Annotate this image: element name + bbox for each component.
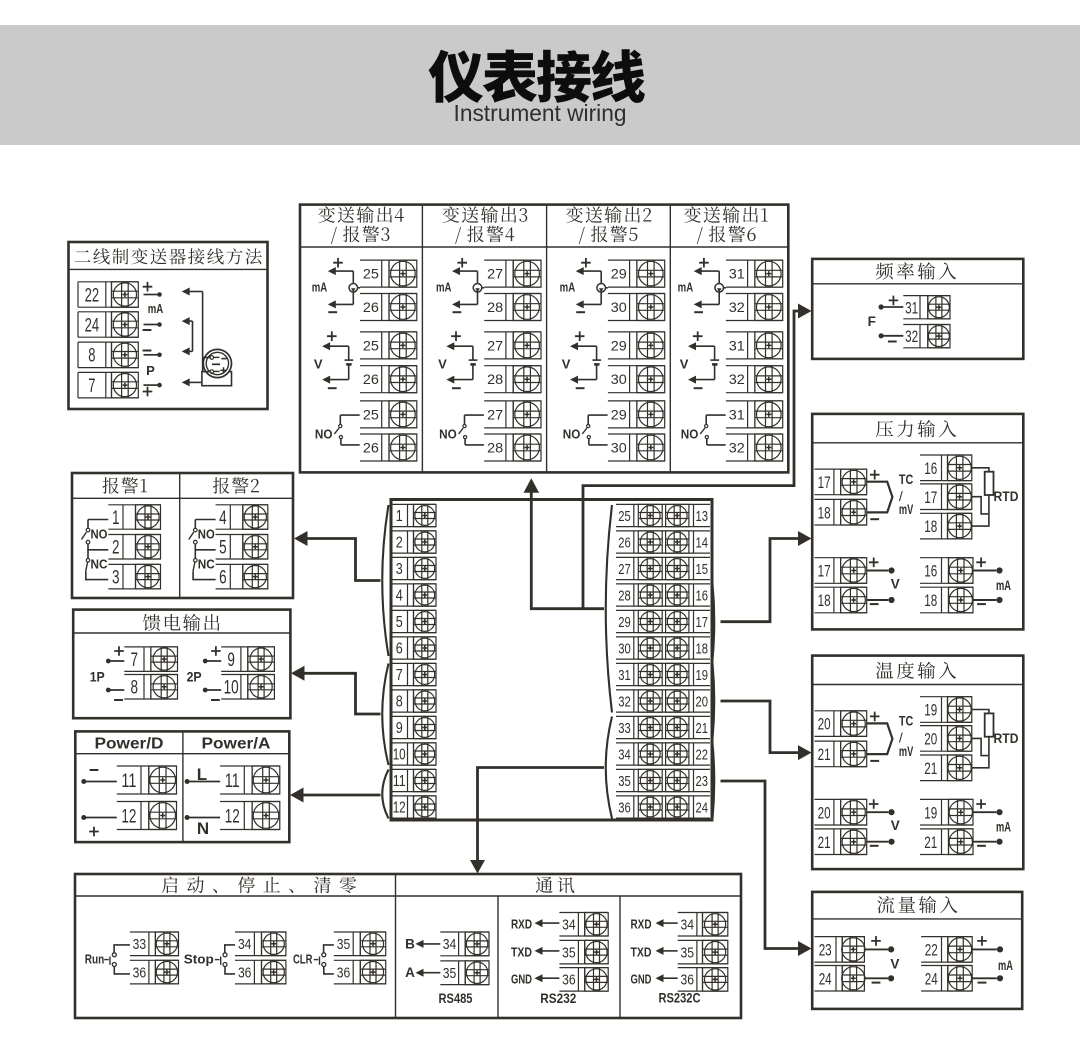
svg-text:34: 34 — [238, 937, 252, 953]
svg-text:34: 34 — [443, 937, 457, 953]
svg-text:7: 7 — [88, 376, 95, 397]
svg-text:12: 12 — [225, 806, 240, 827]
svg-text:25: 25 — [618, 509, 631, 525]
svg-text:16: 16 — [924, 459, 937, 478]
svg-text:NO: NO — [198, 526, 215, 541]
svg-text:4: 4 — [396, 588, 403, 605]
svg-text:V: V — [562, 356, 571, 371]
svg-text:22: 22 — [85, 285, 100, 306]
svg-text:mA: mA — [312, 280, 328, 295]
svg-text:35: 35 — [562, 945, 576, 961]
svg-text:24: 24 — [696, 800, 709, 816]
svg-text:1: 1 — [396, 508, 403, 525]
svg-text:V: V — [891, 818, 900, 833]
svg-text:NO: NO — [91, 526, 108, 541]
svg-text:2P: 2P — [187, 669, 202, 685]
svg-text:P: P — [146, 363, 155, 378]
svg-text:27: 27 — [618, 562, 631, 578]
svg-text:22: 22 — [696, 747, 709, 763]
svg-text:RXD: RXD — [631, 917, 652, 932]
svg-text:mA: mA — [560, 280, 576, 295]
svg-text:34: 34 — [562, 918, 576, 934]
svg-text:11: 11 — [121, 771, 136, 792]
svg-text:NO: NO — [439, 427, 457, 442]
svg-text:3: 3 — [112, 567, 120, 588]
svg-text:9: 9 — [396, 720, 403, 737]
svg-text:Run: Run — [85, 952, 105, 966]
svg-text:36: 36 — [618, 800, 631, 816]
svg-text:32: 32 — [618, 694, 631, 710]
svg-text:V: V — [680, 356, 689, 371]
svg-text:mA: mA — [996, 578, 1011, 593]
svg-text:17: 17 — [818, 473, 831, 492]
svg-text:NO: NO — [681, 427, 699, 442]
svg-text:35: 35 — [618, 774, 631, 790]
svg-text:RTD: RTD — [994, 489, 1019, 504]
svg-text:36: 36 — [681, 973, 695, 989]
svg-text:4: 4 — [219, 508, 227, 529]
svg-text:30: 30 — [618, 641, 631, 657]
svg-text:24: 24 — [925, 969, 938, 988]
svg-text:29: 29 — [618, 615, 631, 631]
svg-text:21: 21 — [924, 759, 937, 778]
svg-text:24: 24 — [85, 315, 100, 336]
svg-text:CLR: CLR — [293, 952, 313, 966]
svg-text:34: 34 — [681, 918, 695, 934]
svg-text:mA: mA — [678, 280, 694, 295]
svg-text:1P: 1P — [90, 669, 105, 685]
svg-text:RS232: RS232 — [540, 990, 576, 1006]
svg-text:11: 11 — [225, 771, 240, 792]
svg-text:TXD: TXD — [631, 944, 652, 959]
svg-text:Instrument wiring: Instrument wiring — [454, 100, 627, 126]
svg-text:32: 32 — [729, 299, 745, 315]
svg-text:18: 18 — [818, 503, 831, 522]
svg-text:25: 25 — [363, 337, 379, 353]
svg-text:12: 12 — [121, 806, 136, 827]
svg-text:NC: NC — [198, 557, 216, 572]
svg-text:18: 18 — [924, 591, 937, 610]
svg-text:11: 11 — [393, 773, 406, 790]
svg-text:36: 36 — [337, 965, 351, 981]
svg-text:TC: TC — [899, 472, 914, 487]
svg-text:V: V — [314, 356, 323, 371]
svg-text:21: 21 — [818, 833, 831, 852]
svg-text:27: 27 — [487, 266, 503, 282]
svg-text:Stop: Stop — [184, 952, 214, 966]
svg-text:19: 19 — [924, 701, 937, 720]
svg-text:RTD: RTD — [994, 731, 1019, 746]
svg-text:33: 33 — [618, 721, 631, 737]
svg-text:GND: GND — [511, 972, 532, 987]
svg-text:19: 19 — [696, 668, 709, 684]
svg-text:30: 30 — [611, 371, 627, 387]
svg-text:35: 35 — [681, 945, 695, 961]
svg-text:10: 10 — [393, 747, 406, 764]
svg-text:RS485: RS485 — [439, 990, 473, 1006]
svg-text:20: 20 — [818, 715, 831, 734]
svg-text:29: 29 — [611, 266, 627, 282]
svg-text:6: 6 — [219, 567, 227, 588]
svg-text:7: 7 — [130, 650, 138, 671]
svg-text:21: 21 — [924, 833, 937, 852]
svg-text:17: 17 — [818, 562, 831, 581]
svg-text:23: 23 — [819, 941, 832, 960]
svg-text:NO: NO — [563, 427, 581, 442]
svg-text:28: 28 — [487, 440, 503, 456]
svg-text:29: 29 — [611, 406, 627, 422]
svg-text:36: 36 — [133, 965, 147, 981]
svg-text:2: 2 — [396, 535, 403, 552]
svg-text:35: 35 — [337, 937, 351, 953]
svg-text:16: 16 — [924, 562, 937, 581]
svg-text:Power/A: Power/A — [202, 736, 271, 753]
svg-text:28: 28 — [487, 371, 503, 387]
svg-text:8: 8 — [396, 694, 403, 711]
svg-text:21: 21 — [818, 745, 831, 764]
svg-text:12: 12 — [393, 800, 406, 817]
svg-text:GND: GND — [631, 972, 652, 987]
svg-text:Power/D: Power/D — [95, 736, 164, 753]
svg-text:mA: mA — [148, 301, 164, 316]
svg-text:8: 8 — [88, 346, 95, 367]
svg-text:A: A — [405, 965, 415, 980]
svg-text:7: 7 — [396, 667, 403, 684]
svg-text:RS232C: RS232C — [659, 990, 701, 1006]
svg-text:20: 20 — [924, 730, 937, 749]
svg-text:1: 1 — [112, 508, 120, 529]
svg-text:24: 24 — [819, 969, 832, 988]
svg-text:18: 18 — [696, 641, 709, 657]
svg-text:13: 13 — [696, 509, 709, 525]
svg-text:23: 23 — [696, 774, 709, 790]
svg-text:V: V — [890, 957, 899, 972]
svg-text:20: 20 — [696, 694, 709, 710]
svg-text:31: 31 — [729, 406, 745, 422]
svg-text:22: 22 — [925, 941, 938, 960]
svg-text:33: 33 — [133, 937, 147, 953]
svg-text:31: 31 — [905, 298, 918, 317]
svg-text:20: 20 — [818, 803, 831, 822]
svg-text:mA: mA — [436, 280, 452, 295]
svg-text:31: 31 — [729, 266, 745, 282]
svg-text:32: 32 — [729, 440, 745, 456]
svg-text:36: 36 — [238, 965, 252, 981]
svg-text:32: 32 — [905, 327, 918, 346]
svg-text:26: 26 — [363, 440, 379, 456]
svg-text:26: 26 — [618, 535, 631, 551]
svg-text:34: 34 — [618, 747, 631, 763]
svg-text:30: 30 — [611, 440, 627, 456]
svg-text:28: 28 — [487, 299, 503, 315]
svg-text:18: 18 — [924, 517, 937, 536]
svg-text:31: 31 — [618, 668, 631, 684]
svg-text:10: 10 — [224, 678, 239, 699]
svg-text:8: 8 — [130, 678, 138, 699]
svg-text:6: 6 — [396, 641, 403, 658]
svg-text:9: 9 — [227, 650, 235, 671]
svg-text:16: 16 — [696, 588, 709, 604]
svg-text:30: 30 — [611, 299, 627, 315]
svg-text:14: 14 — [696, 535, 709, 551]
svg-text:V: V — [891, 577, 900, 592]
svg-text:26: 26 — [363, 371, 379, 387]
svg-text:15: 15 — [696, 562, 709, 578]
svg-text:mA: mA — [998, 958, 1013, 973]
svg-text:36: 36 — [562, 973, 576, 989]
svg-text:32: 32 — [729, 371, 745, 387]
svg-text:mV: mV — [899, 502, 913, 517]
svg-text:5: 5 — [396, 614, 403, 631]
svg-text:17: 17 — [924, 488, 937, 507]
svg-text:25: 25 — [363, 406, 379, 422]
svg-text:27: 27 — [487, 406, 503, 422]
svg-text:17: 17 — [696, 615, 709, 631]
svg-text:3: 3 — [396, 561, 403, 578]
svg-text:RXD: RXD — [511, 917, 532, 932]
svg-text:mA: mA — [996, 820, 1011, 835]
svg-text:NO: NO — [315, 427, 333, 442]
svg-text:L: L — [197, 765, 207, 784]
svg-text:35: 35 — [443, 966, 457, 982]
svg-text:NC: NC — [91, 557, 109, 572]
svg-text:F: F — [868, 314, 876, 329]
svg-text:5: 5 — [219, 538, 227, 559]
svg-text:mV: mV — [899, 744, 913, 759]
svg-text:2: 2 — [112, 538, 120, 559]
svg-text:18: 18 — [818, 591, 831, 610]
svg-text:28: 28 — [618, 588, 631, 604]
svg-text:19: 19 — [924, 803, 937, 822]
svg-text:N: N — [197, 819, 209, 838]
svg-text:TXD: TXD — [511, 944, 532, 959]
svg-text:V: V — [438, 356, 447, 371]
svg-text:TC: TC — [899, 714, 914, 729]
svg-text:31: 31 — [729, 337, 745, 353]
svg-text:26: 26 — [363, 299, 379, 315]
svg-text:29: 29 — [611, 337, 627, 353]
svg-text:B: B — [405, 936, 415, 951]
svg-text:25: 25 — [363, 266, 379, 282]
svg-text:21: 21 — [696, 721, 709, 737]
svg-text:27: 27 — [487, 337, 503, 353]
